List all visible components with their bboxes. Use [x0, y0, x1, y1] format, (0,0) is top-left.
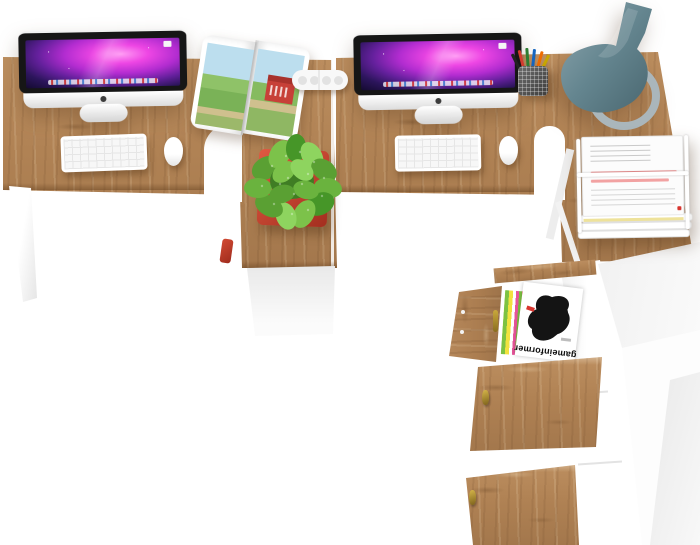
vase [558, 0, 666, 132]
connector-hole [334, 76, 343, 85]
document-red-mark [677, 206, 681, 210]
imac-stand [79, 104, 127, 123]
gameinformer-magazine: gameinformer [515, 282, 584, 363]
tray-wire-frame [684, 135, 690, 229]
imac-screen-wallpaper [360, 40, 515, 91]
mesh-cup [518, 66, 548, 96]
door-hinge [461, 310, 465, 314]
desk-left-front-edge [3, 183, 204, 190]
keyboard-right [395, 134, 482, 171]
connector-hole [298, 76, 307, 85]
imac-left [18, 29, 188, 124]
connector-hole [322, 76, 331, 85]
imac-desktop-icon [498, 43, 506, 49]
imac-dock [383, 80, 494, 87]
shelf-door-lower [461, 462, 579, 545]
imac-screen-bezel [353, 31, 522, 96]
door-knob-upper [482, 390, 489, 405]
tray-tier [578, 229, 690, 239]
potted-plant [242, 126, 342, 238]
pedestal-cabinet-left [240, 266, 337, 338]
plant-foliage [242, 126, 342, 238]
door-edge-highlight [461, 462, 579, 472]
shelf-open-door [449, 286, 502, 362]
keyboard-keys [64, 137, 145, 170]
product-image: gameinformer [0, 0, 700, 545]
apple-logo-icon [435, 98, 441, 104]
imac-screen-wallpaper [25, 38, 180, 89]
cable-connector [292, 70, 348, 90]
imac-right [353, 31, 523, 126]
connector-seam [318, 70, 320, 90]
apple-logo-icon [100, 96, 106, 102]
magazine-cover-art [518, 286, 581, 350]
paper-tray [574, 133, 694, 241]
keyboard-keys [398, 137, 479, 168]
pencil-cup [510, 50, 554, 98]
door-knob-lower [469, 490, 476, 505]
imac-desktop-icon [163, 41, 171, 47]
keyboard-left [60, 134, 147, 173]
document-text-lines [590, 143, 650, 162]
imac-stand [414, 106, 462, 125]
imac-dock [48, 78, 159, 85]
door-handle-gold [493, 310, 498, 332]
red-chair-fragment [219, 238, 233, 263]
document-red-line [591, 178, 669, 182]
desk-right-front-edge [336, 185, 534, 192]
imac-screen-bezel [18, 29, 187, 94]
desk-left-leg [4, 186, 42, 304]
door-hinge [460, 330, 464, 334]
barn-windows [269, 85, 290, 98]
document-text-lines [591, 188, 675, 205]
